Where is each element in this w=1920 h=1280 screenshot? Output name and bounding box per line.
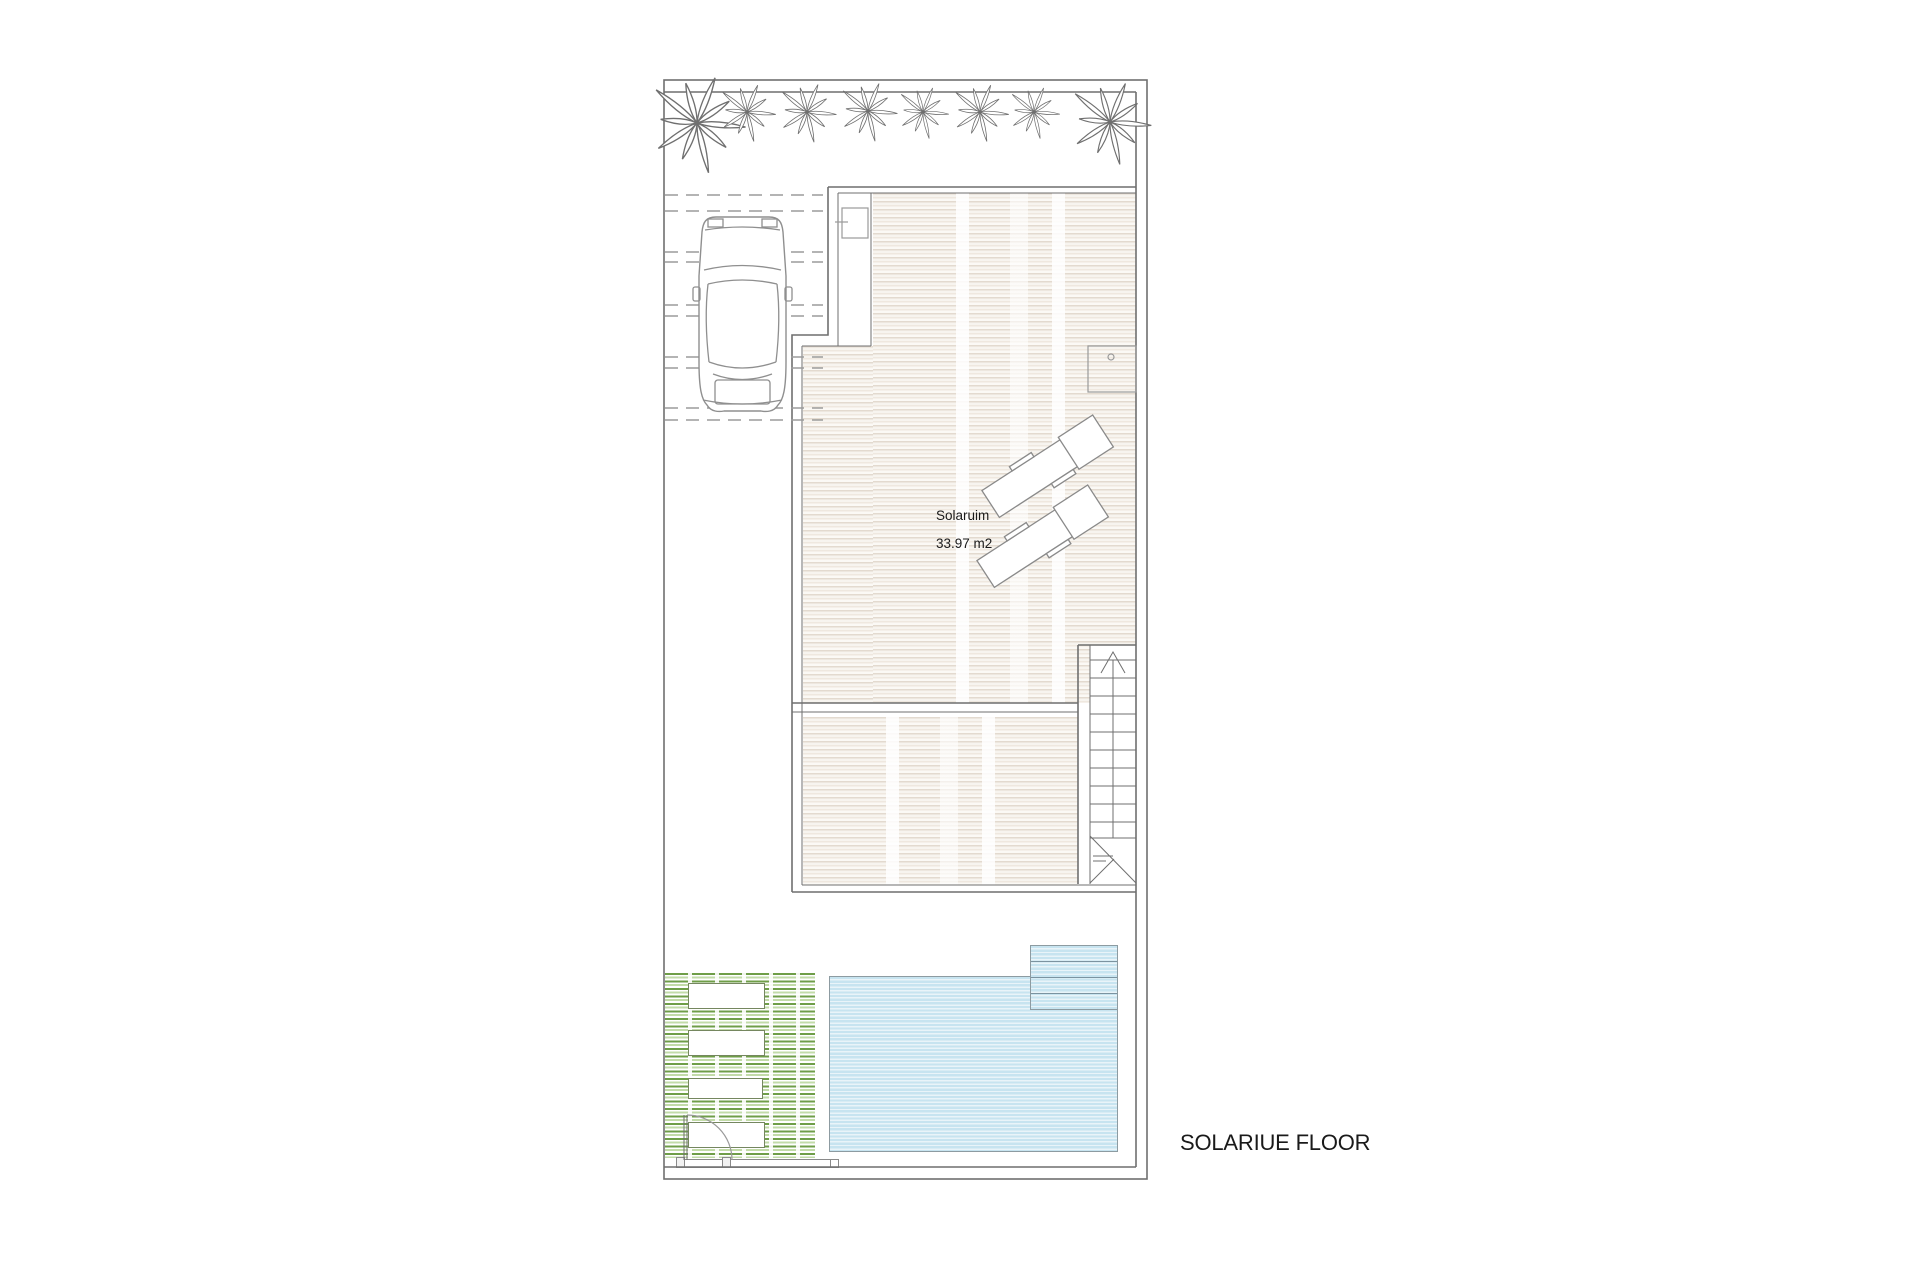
floor-plan-canvas: Solaruim 33.97 m2 SOLARIUE FLOOR: [0, 0, 1920, 1280]
room-label: Solaruim 33.97 m2: [936, 495, 992, 565]
outdoor-shower-icon: [1088, 346, 1136, 392]
service-box: [835, 208, 868, 238]
staircase-icon: [1078, 645, 1136, 884]
room-area: 33.97 m2: [936, 537, 992, 551]
plan-linework: [0, 0, 1920, 1280]
floor-title: SOLARIUE FLOOR: [1180, 1130, 1370, 1156]
car-top-view-icon: [693, 217, 792, 411]
room-name: Solaruim: [936, 509, 992, 523]
gate-swing-icon: [684, 1115, 732, 1160]
